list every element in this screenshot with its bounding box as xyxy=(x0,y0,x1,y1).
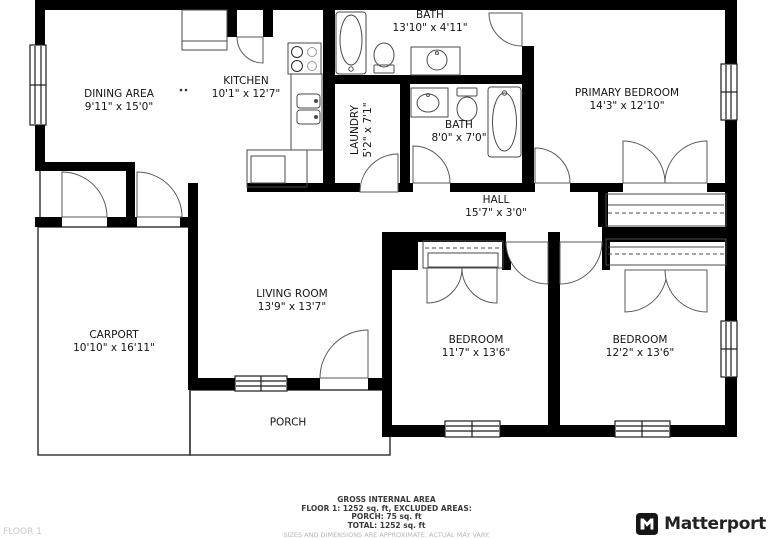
floor-label: FLOOR 1 xyxy=(3,527,42,537)
room-dims: 10'1" x 12'7" xyxy=(212,88,280,101)
kitchen-sink-icon xyxy=(297,94,320,124)
door-arc xyxy=(62,172,107,217)
window xyxy=(235,376,287,391)
door-arc xyxy=(665,141,707,183)
room-dims: 8'0" x 7'0" xyxy=(431,132,486,145)
room-name: BEDROOM xyxy=(606,334,674,347)
closet-primary xyxy=(606,194,726,226)
room-dims: 15'7" x 3'0" xyxy=(465,207,527,220)
window xyxy=(445,421,500,437)
walls xyxy=(35,0,737,437)
room-name: LIVING ROOM xyxy=(256,288,327,301)
bathtub-icon xyxy=(488,87,521,157)
room-dims: 11'7" x 13'6" xyxy=(442,347,510,360)
room-label-carport: CARPORT 10'10" x 16'11" xyxy=(73,329,155,355)
room-name: BATH xyxy=(431,119,486,132)
room-label-porch: PORCH xyxy=(270,417,307,430)
matterport-wordmark: Matterport xyxy=(664,514,766,534)
door-arc xyxy=(427,268,462,303)
ceiling-fixture-dots xyxy=(180,89,188,92)
room-name: BATH xyxy=(392,9,467,22)
room-name: CARPORT xyxy=(73,329,155,342)
room-label-dining: DINING AREA 9'11" x 15'0" xyxy=(84,88,154,114)
room-label-bedroom-1: BEDROOM 11'7" x 13'6" xyxy=(442,334,510,360)
room-name: DINING AREA xyxy=(84,88,154,101)
door-arc xyxy=(625,270,667,312)
room-dims: 12'2" x 13'6" xyxy=(606,347,674,360)
door-arc xyxy=(489,13,522,46)
room-dims: 14'3" x 12'10" xyxy=(575,100,679,113)
room-name: KITCHEN xyxy=(212,75,280,88)
closet-bedroom-2 xyxy=(606,239,726,265)
room-label-hall: HALL 15'7" x 3'0" xyxy=(465,194,527,220)
floorplan-page: DINING AREA 9'11" x 15'0" KITCHEN 10'1" … xyxy=(0,0,773,539)
room-label-kitchen: KITCHEN 10'1" x 12'7" xyxy=(212,75,280,101)
sink-icon xyxy=(411,88,448,117)
door-arc xyxy=(137,172,182,217)
door-arc xyxy=(535,148,570,183)
room-name: BEDROOM xyxy=(442,334,510,347)
room-dims: 5'2" x 7'1" xyxy=(362,102,375,157)
room-dims: 13'10" x 4'11" xyxy=(392,22,467,35)
toilet-icon xyxy=(457,88,477,121)
room-label-primary-bedroom: PRIMARY BEDROOM 14'3" x 12'10" xyxy=(575,87,679,113)
toilet-icon xyxy=(374,43,394,73)
matterport-icon xyxy=(636,513,658,535)
matterport-logo: Matterport xyxy=(636,513,766,535)
room-name: LAUNDRY xyxy=(349,102,362,157)
room-name: PRIMARY BEDROOM xyxy=(575,87,679,100)
window xyxy=(30,45,46,125)
room-label-bath-top: BATH 13'10" x 4'11" xyxy=(392,9,467,35)
sink-icon xyxy=(411,47,460,75)
door-arc xyxy=(360,154,398,192)
room-name: HALL xyxy=(465,194,527,207)
closet-bedroom-1 xyxy=(423,241,503,268)
room-label-laundry: LAUNDRY 5'2" x 7'1" xyxy=(349,102,375,157)
room-dims: 13'9" x 13'7" xyxy=(256,301,327,314)
door-arc xyxy=(560,242,602,284)
window xyxy=(615,421,670,437)
refrigerator-icon xyxy=(182,10,227,50)
room-label-bedroom-2: BEDROOM 12'2" x 13'6" xyxy=(606,334,674,360)
window xyxy=(721,64,737,120)
room-dims: 9'11" x 15'0" xyxy=(84,101,154,114)
door-arc xyxy=(462,268,497,303)
room-name: PORCH xyxy=(270,417,307,430)
door-arc xyxy=(237,37,263,63)
door-arc xyxy=(665,270,707,312)
stove-icon xyxy=(288,43,321,74)
room-dims: 10'10" x 16'11" xyxy=(73,342,155,355)
bathtub-icon xyxy=(336,12,366,74)
door-arc xyxy=(413,146,450,183)
door-arc xyxy=(320,330,368,378)
door-arc xyxy=(506,242,548,284)
door-arc xyxy=(623,141,665,183)
window xyxy=(721,321,737,377)
room-label-living-room: LIVING ROOM 13'9" x 13'7" xyxy=(256,288,327,314)
room-label-bath-hall: BATH 8'0" x 7'0" xyxy=(431,119,486,145)
floorplan-canvas xyxy=(0,0,773,539)
